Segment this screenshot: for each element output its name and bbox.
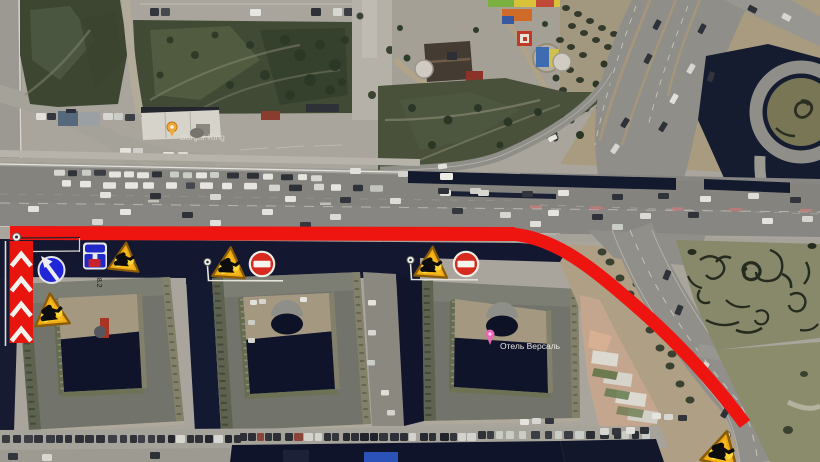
svg-text:6.8.2: 6.8.2 [95, 272, 102, 288]
svg-text:Отель Версаль: Отель Версаль [500, 341, 561, 351]
